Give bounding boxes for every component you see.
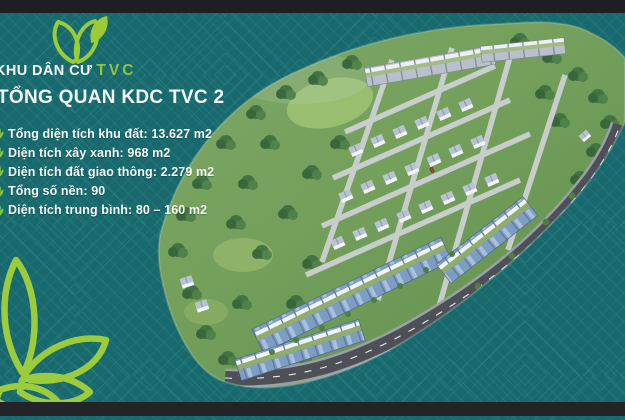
leaf-sprout-icon bbox=[0, 165, 4, 178]
stat-text: Tổng số nền: 90 bbox=[8, 184, 105, 198]
stat-item: Diện tích đất giao thông: 2.279 m2 bbox=[0, 162, 214, 181]
stat-item: Tổng số nền: 90 bbox=[0, 182, 214, 201]
brand-name-prefix: KHU DÂN CƯ bbox=[0, 63, 92, 79]
brand-name-accent: TVC bbox=[96, 62, 136, 79]
stats-list: Tổng diện tích khu đất: 13.627 m2 Diện t… bbox=[0, 124, 214, 220]
slide-background: KHU DÂN CƯTVC TỔNG QUAN KDC TVC 2 Tổng d… bbox=[0, 0, 625, 420]
leaf-sprout-icon bbox=[0, 146, 4, 159]
leaf-sprout-icon bbox=[0, 185, 4, 198]
brand-name: KHU DÂN CƯTVC bbox=[0, 62, 136, 80]
top-letterbox-bar bbox=[0, 0, 625, 13]
twin-leaves-icon bbox=[47, 15, 109, 67]
stat-item: Diện tích trung bình: 80 – 160 m2 bbox=[0, 201, 214, 220]
page-title: TỔNG QUAN KDC TVC 2 bbox=[0, 87, 224, 109]
stat-item: Tổng diện tích khu đất: 13.627 m2 bbox=[0, 124, 214, 143]
stat-text: Diện tích xây xanh: 968 m2 bbox=[8, 146, 170, 160]
bottom-letterbox-bar bbox=[0, 402, 625, 416]
stat-text: Tổng diện tích khu đất: 13.627 m2 bbox=[8, 127, 212, 141]
stat-text: Diện tích trung bình: 80 – 160 m2 bbox=[8, 203, 207, 217]
stat-item: Diện tích xây xanh: 968 m2 bbox=[0, 143, 214, 162]
leaf-sprout-icon bbox=[0, 127, 4, 140]
leaf-sprout-icon bbox=[0, 204, 4, 217]
stat-text: Diện tích đất giao thông: 2.279 m2 bbox=[8, 165, 214, 179]
